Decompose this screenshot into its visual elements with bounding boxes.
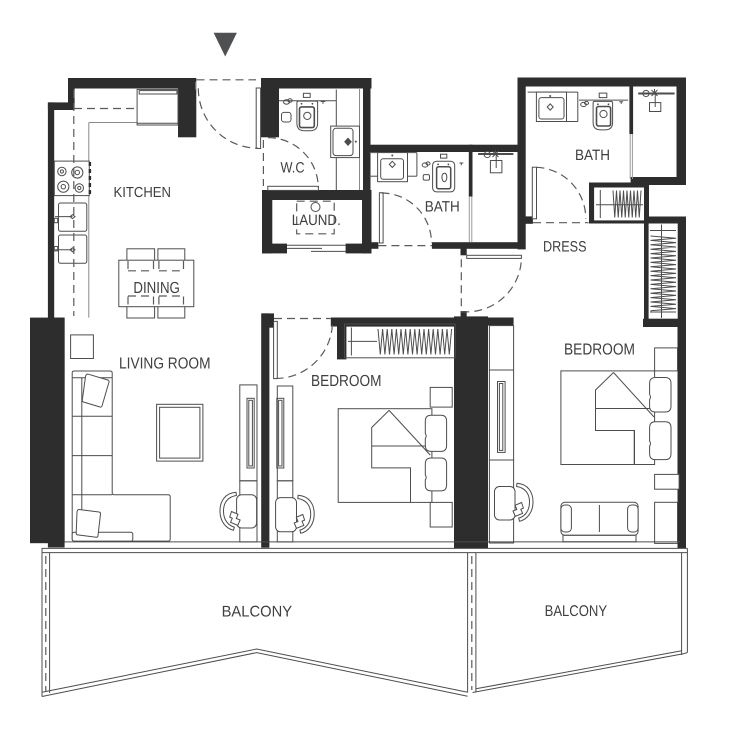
svg-text:KITCHEN: KITCHEN [114,185,172,201]
svg-text:LIVING ROOM: LIVING ROOM [119,355,211,372]
svg-text:BEDROOM: BEDROOM [311,373,382,390]
svg-text:DINING: DINING [133,280,180,297]
svg-text:BATH: BATH [575,147,610,164]
svg-text:BATH: BATH [425,199,460,216]
svg-text:DRESS: DRESS [543,239,587,256]
svg-text:BALCONY: BALCONY [222,604,293,621]
svg-text:BALCONY: BALCONY [545,603,608,620]
svg-text:W.C: W.C [281,160,305,177]
svg-text:BEDROOM: BEDROOM [564,342,635,359]
svg-text:LAUND.: LAUND. [292,212,341,229]
